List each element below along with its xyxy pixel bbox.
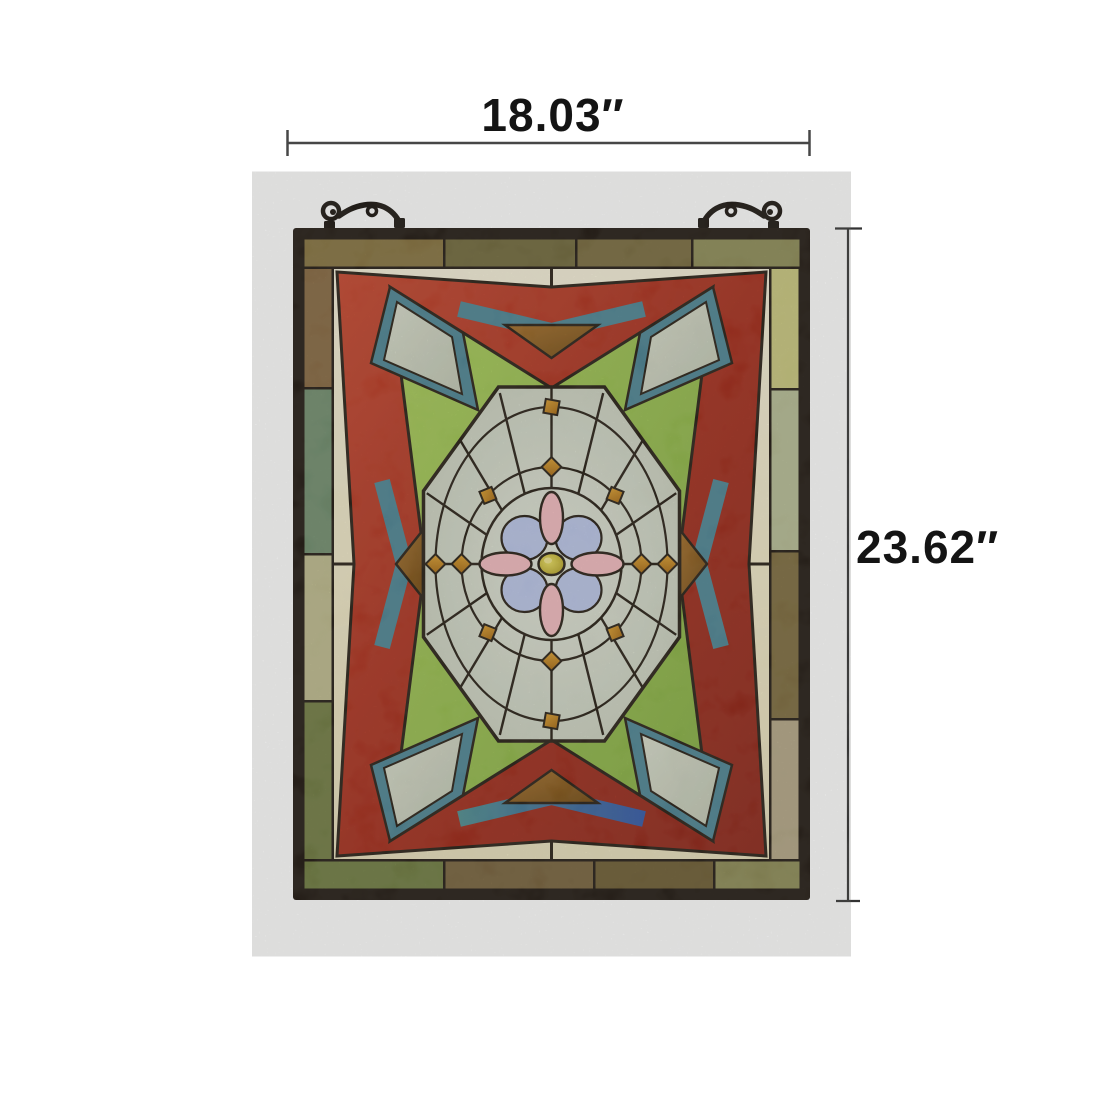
glass-grain-overlay [302, 237, 801, 891]
stained-glass-panel [293, 228, 810, 900]
left-hanging-hook-icon [323, 203, 405, 229]
product-dimension-figure: 18.03″ 23.62″ [0, 0, 1100, 1100]
height-dimension-label: 23.62″ [856, 520, 999, 574]
width-dimension-label: 18.03″ [448, 88, 658, 142]
right-hanging-hook-icon [698, 203, 780, 229]
